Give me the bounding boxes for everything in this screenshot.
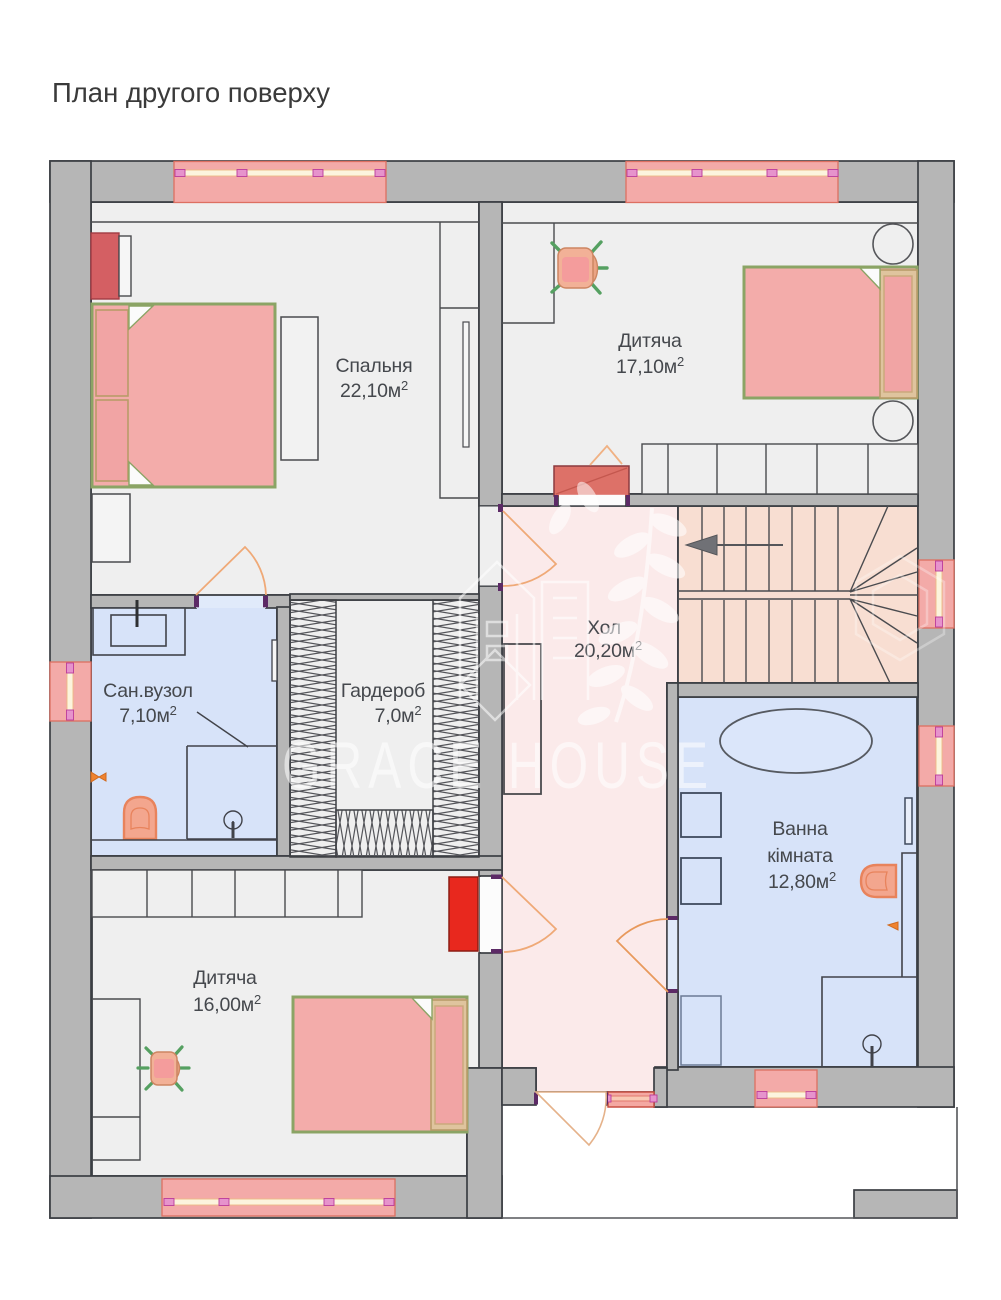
svg-text:12,80м2: 12,80м2: [768, 869, 836, 893]
svg-text:Дитяча: Дитяча: [618, 330, 682, 352]
svg-text:Дитяча: Дитяча: [193, 967, 257, 989]
svg-text:План другого поверху: План другого поверху: [52, 77, 330, 108]
svg-text:Гардероб: Гардероб: [341, 680, 425, 702]
svg-text:22,10м2: 22,10м2: [340, 378, 408, 402]
svg-text:7,10м2: 7,10м2: [119, 703, 176, 727]
svg-text:Ванна: Ванна: [772, 818, 828, 840]
svg-text:Сан.вузол: Сан.вузол: [103, 680, 193, 702]
svg-text:кімната: кімната: [767, 845, 833, 867]
svg-text:17,10м2: 17,10м2: [616, 354, 684, 378]
svg-text:GRACE HOUSE: GRACE HOUSE: [282, 728, 714, 802]
svg-text:16,00м2: 16,00м2: [193, 992, 261, 1016]
svg-text:Спальня: Спальня: [336, 355, 413, 377]
